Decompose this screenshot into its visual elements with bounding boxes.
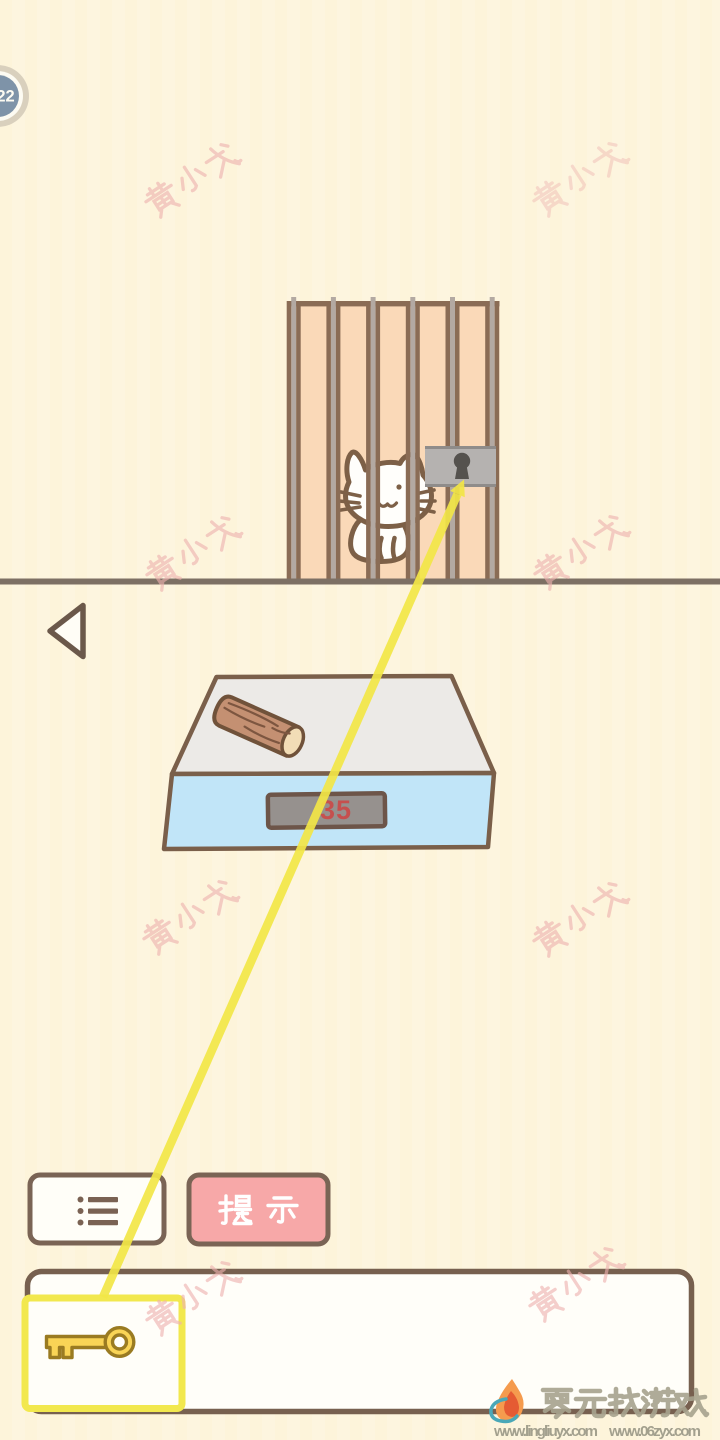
svg-text:22: 22 [0, 88, 15, 106]
svg-text:www.lingliuyx.com: www.lingliuyx.com [493, 1423, 598, 1440]
svg-text:www.06zyx.com: www.06zyx.com [608, 1423, 701, 1440]
